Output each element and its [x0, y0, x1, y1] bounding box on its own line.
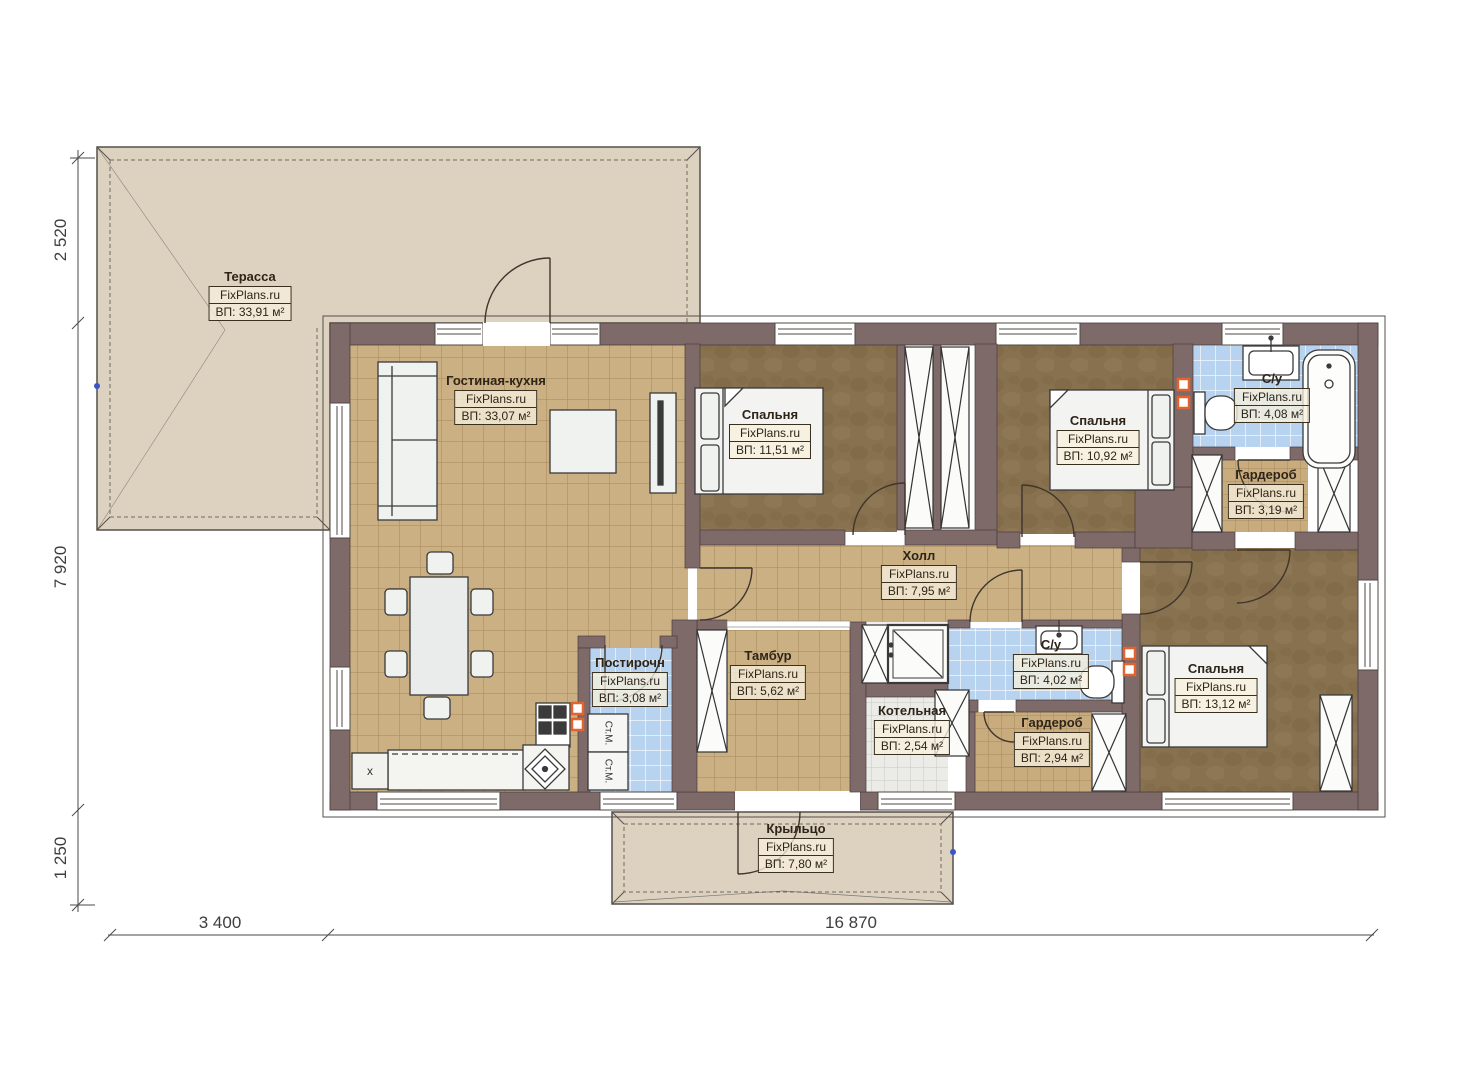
- floor-plan-page: Терасса FixPlans.ru ВП: 33,91 м² Гостина…: [0, 0, 1473, 1080]
- room-name: Гостиная-кухня: [446, 374, 546, 388]
- room-area: ВП: 3,19 м²: [1229, 502, 1303, 518]
- dimension-bottom-right: 16 870: [825, 913, 877, 933]
- closet: [1192, 455, 1222, 532]
- room-label-porch: Крыльцо FixPlans.ru ВП: 7,80 м²: [758, 822, 834, 873]
- room-label-bathroom1: С/у FixPlans.ru ВП: 4,08 м²: [1234, 372, 1310, 423]
- room-area: ВП: 3,08 м²: [593, 690, 667, 706]
- watermark: FixPlans.ru: [882, 566, 956, 583]
- room-area: ВП: 5,62 м²: [731, 683, 805, 699]
- kitchen-cabinet-label: х: [367, 764, 373, 778]
- watermark: FixPlans.ru: [875, 721, 949, 738]
- watermark: FixPlans.ru: [1229, 485, 1303, 502]
- coffee-table: [550, 410, 616, 473]
- cad-node-dot: [950, 849, 956, 855]
- watermark: FixPlans.ru: [759, 839, 833, 856]
- washing-machine-label: Ст.М.: [603, 721, 614, 746]
- room-name: Гардероб: [1014, 716, 1090, 730]
- room-name: С/у: [1013, 638, 1089, 652]
- closet: [905, 347, 933, 528]
- room-name: Спальня: [729, 408, 811, 422]
- dimension-bottom-left: 3 400: [199, 913, 242, 933]
- dimension-left-top: 2 520: [51, 219, 71, 262]
- room-name: Тамбур: [730, 649, 806, 663]
- room-label-bedroom3: Спальня FixPlans.ru ВП: 13,12 м²: [1175, 662, 1258, 713]
- room-label-bedroom1: Спальня FixPlans.ru ВП: 11,51 м²: [729, 408, 811, 459]
- porch-door-opening: [735, 791, 860, 811]
- watermark: FixPlans.ru: [1058, 431, 1139, 448]
- watermark: FixPlans.ru: [210, 287, 291, 304]
- room-label-boiler: Котельная FixPlans.ru ВП: 2,54 м²: [874, 704, 950, 755]
- cad-node-dot: [94, 383, 100, 389]
- shower: [888, 625, 948, 683]
- room-area: ВП: 4,02 м²: [1014, 672, 1088, 688]
- toilet: [1194, 392, 1237, 434]
- room-label-wardrobe2: Гардероб FixPlans.ru ВП: 2,94 м²: [1014, 716, 1090, 767]
- room-area: ВП: 4,08 м²: [1235, 406, 1309, 422]
- kitchen-stove: [536, 703, 570, 747]
- dimension-left-bottom: 1 250: [51, 837, 71, 880]
- room-label-laundry: Постирочн FixPlans.ru ВП: 3,08 м²: [592, 656, 668, 707]
- watermark: FixPlans.ru: [1014, 655, 1088, 672]
- closet: [1092, 714, 1126, 791]
- closet: [862, 625, 888, 683]
- closet: [941, 347, 969, 528]
- room-label-bedroom2: Спальня FixPlans.ru ВП: 10,92 м²: [1057, 414, 1140, 465]
- kitchen-counter: [352, 750, 524, 790]
- room-name: Спальня: [1175, 662, 1258, 676]
- room-area: ВП: 33,91 м²: [210, 304, 291, 320]
- room-name: Спальня: [1057, 414, 1140, 428]
- watermark: FixPlans.ru: [1235, 389, 1309, 406]
- watermark: FixPlans.ru: [1015, 733, 1089, 750]
- room-name: Гардероб: [1228, 468, 1304, 482]
- room-name: Котельная: [874, 704, 950, 718]
- tv-unit: [650, 393, 676, 493]
- room-name: Терасса: [209, 270, 292, 284]
- room-area: ВП: 10,92 м²: [1058, 448, 1139, 464]
- room-name: С/у: [1234, 372, 1310, 386]
- room-label-hall: Холл FixPlans.ru ВП: 7,95 м²: [881, 549, 957, 600]
- room-label-living-kitchen: Гостиная-кухня FixPlans.ru ВП: 33,07 м²: [446, 374, 546, 425]
- closet: [1320, 695, 1352, 791]
- dimension-left-middle: 7 920: [51, 546, 71, 589]
- room-label-bathroom2: С/у FixPlans.ru ВП: 4,02 м²: [1013, 638, 1089, 689]
- room-area: ВП: 11,51 м²: [730, 442, 810, 458]
- room-area: ВП: 7,80 м²: [759, 856, 833, 872]
- room-name: Холл: [881, 549, 957, 563]
- room-area: ВП: 2,94 м²: [1015, 750, 1089, 766]
- watermark: FixPlans.ru: [730, 425, 810, 442]
- room-label-vestibule: Тамбур FixPlans.ru ВП: 5,62 м²: [730, 649, 806, 700]
- washing-machine-label: Ст.М.: [603, 759, 614, 784]
- room-label-wardrobe1: Гардероб FixPlans.ru ВП: 3,19 м²: [1228, 468, 1304, 519]
- kitchen-sink: [523, 745, 569, 790]
- hall-vestibule-threshold: [727, 621, 850, 627]
- room-name: Постирочн: [592, 656, 668, 670]
- room-area: ВП: 33,07 м²: [456, 408, 537, 424]
- watermark: FixPlans.ru: [456, 391, 537, 408]
- watermark: FixPlans.ru: [731, 666, 805, 683]
- room-area: ВП: 13,12 м²: [1176, 696, 1257, 712]
- bathtub: [1303, 350, 1355, 468]
- room-label-terrace: Терасса FixPlans.ru ВП: 33,91 м²: [209, 270, 292, 321]
- room-area: ВП: 2,54 м²: [875, 738, 949, 754]
- closet: [697, 630, 727, 752]
- room-name: Крыльцо: [758, 822, 834, 836]
- room-area: ВП: 7,95 м²: [882, 583, 956, 599]
- watermark: FixPlans.ru: [1176, 679, 1257, 696]
- terrace-door-opening: [483, 322, 550, 346]
- watermark: FixPlans.ru: [593, 673, 667, 690]
- sofa: [378, 362, 437, 520]
